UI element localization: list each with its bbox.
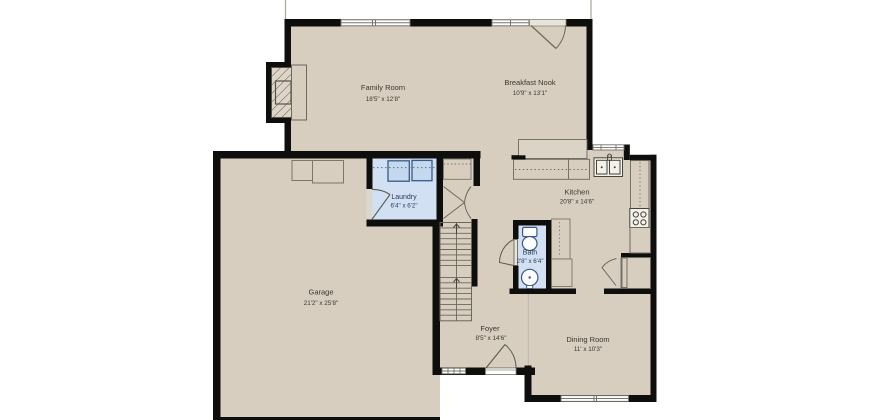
svg-text:20'8" x 14'6": 20'8" x 14'6" bbox=[560, 199, 595, 206]
svg-text:11' x 10'3": 11' x 10'3" bbox=[574, 346, 602, 353]
svg-text:Family Room: Family Room bbox=[361, 83, 405, 92]
svg-text:21'2" x 25'8": 21'2" x 25'8" bbox=[304, 300, 339, 307]
svg-text:Laundry: Laundry bbox=[391, 194, 417, 201]
svg-text:Foyer: Foyer bbox=[480, 324, 500, 333]
svg-text:Kitchen: Kitchen bbox=[564, 188, 589, 197]
svg-text:8'5" x 14'6": 8'5" x 14'6" bbox=[475, 335, 506, 342]
svg-text:Breakfast Nook: Breakfast Nook bbox=[504, 78, 556, 87]
svg-text:Bath: Bath bbox=[523, 250, 538, 257]
svg-text:18'5" x 12'8": 18'5" x 12'8" bbox=[366, 96, 401, 103]
svg-text:Garage: Garage bbox=[308, 288, 333, 297]
svg-text:6'4" x 6'2": 6'4" x 6'2" bbox=[390, 203, 417, 210]
svg-text:10'9" x 13'1": 10'9" x 13'1" bbox=[513, 90, 548, 97]
svg-text:2'8" x 6'4": 2'8" x 6'4" bbox=[516, 258, 543, 265]
svg-text:Dining Room: Dining Room bbox=[566, 335, 609, 344]
